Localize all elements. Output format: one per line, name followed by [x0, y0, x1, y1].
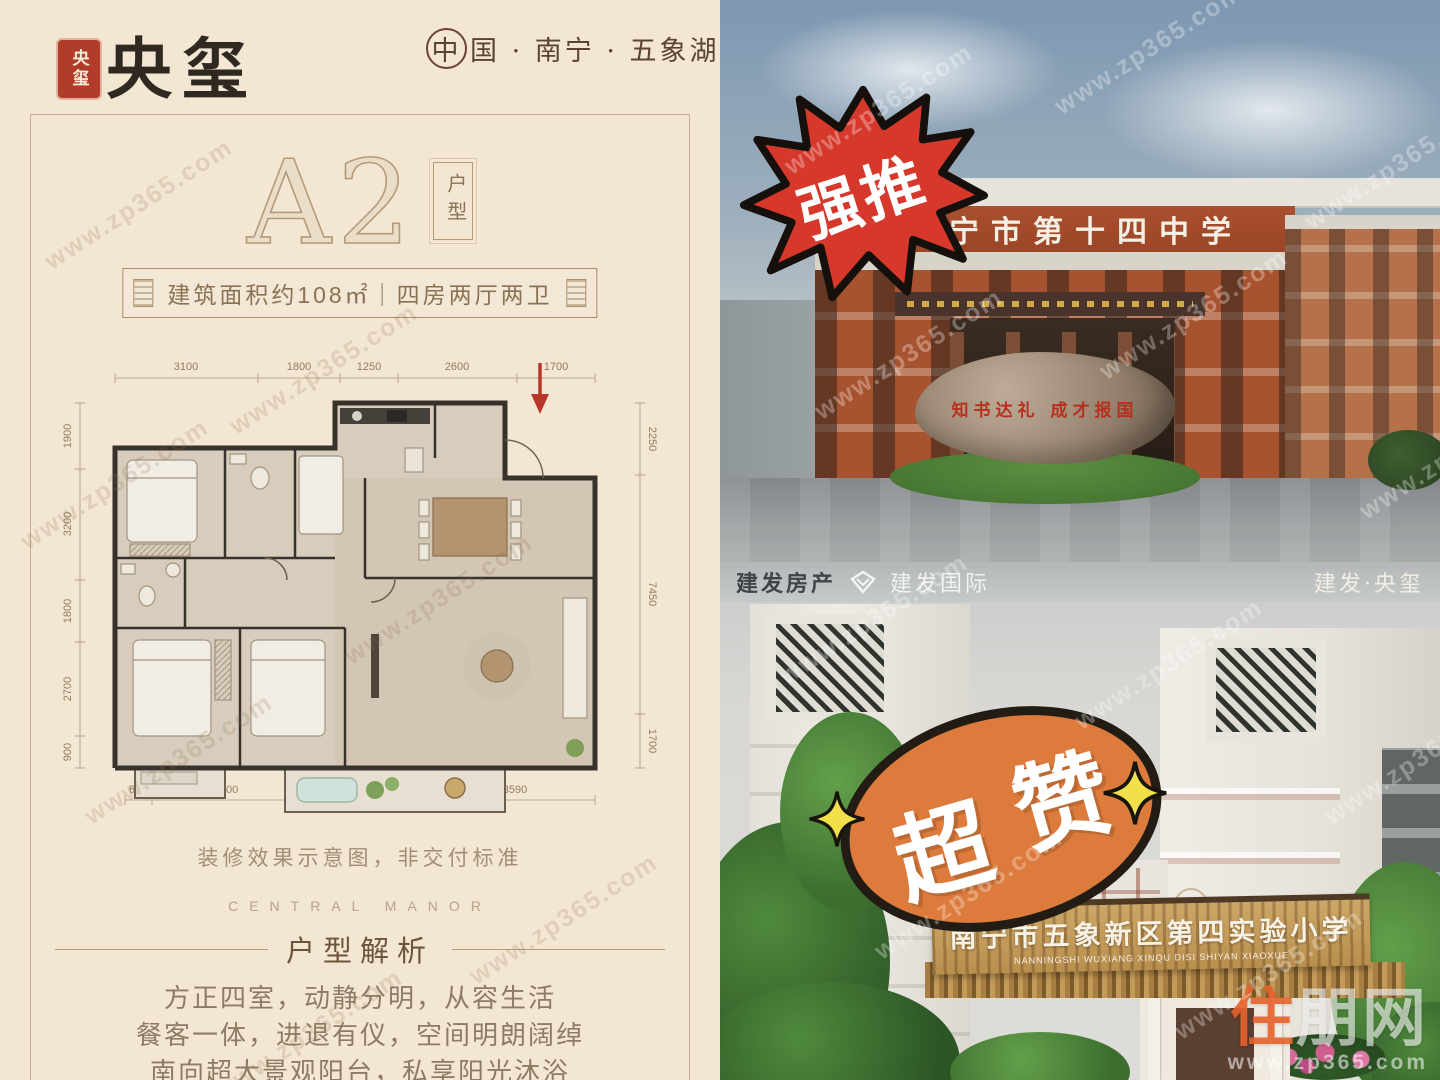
strong-recommend-badge: 强推 — [738, 82, 988, 307]
developer-logo-icon — [850, 570, 876, 594]
developer-name: 建发房产 — [736, 566, 836, 598]
cloud-shape — [1100, 40, 1440, 180]
site-logo-accent-char: 住 — [1230, 982, 1296, 1054]
area-badge: 建筑面积约108㎡｜四房两厅两卫 — [122, 268, 597, 318]
dim-label: 2700 — [62, 677, 74, 701]
inscription-stone: 知书达礼 成才报国 — [915, 352, 1175, 464]
section-title: 户型解析 — [286, 928, 434, 970]
lattice-crown — [1206, 638, 1326, 742]
floorplan-caption: 装修效果示意图，非交付标准 — [0, 842, 720, 872]
dim-label: 1700 — [646, 729, 658, 753]
description-block: 方正四室，动静分明，从容生活 餐客一体，进退有仪，空间明朗阔绰 南向超大景观阳台… — [0, 980, 720, 1080]
super-awesome-text: 超 赞 — [877, 728, 1126, 911]
dim-label: 1900 — [62, 424, 74, 448]
site-logo-name: 住朋网 — [1228, 985, 1428, 1052]
description-line: 方正四室，动静分明，从容生活 — [0, 980, 720, 1017]
background-building — [720, 300, 815, 480]
dim-label: 900 — [62, 743, 74, 761]
site-logo-rest: 朋网 — [1296, 982, 1428, 1054]
rule-left — [55, 949, 268, 950]
location-line: 中 国 · 南宁 · 五象湖 — [426, 28, 720, 69]
foreground-plants — [950, 1032, 1130, 1080]
brand-seal-stamp: 央玺 — [58, 40, 100, 98]
wing-roof — [1285, 215, 1440, 229]
primary-school-photo: 建发房产 建发国际 建发·央玺 南宁市五象新区第四实验小学 NANNINGSH — [720, 562, 1440, 1080]
bush-shape — [1368, 430, 1440, 490]
plan-title: A2 户型 — [0, 146, 720, 262]
middle-school-photo: 南宁市第十四中学 知书达礼 成才报国 — [720, 0, 1440, 562]
project-brand-name: 建发·央玺 — [1314, 566, 1424, 598]
site-logo-url: www.zp365.com — [1228, 1052, 1428, 1074]
area-text: 建筑面积约108㎡｜四房两厅两卫 — [167, 276, 552, 310]
sparkle-icon — [808, 790, 866, 848]
developer-group-name: 建发国际 — [890, 566, 990, 598]
plan-code: A2 — [247, 146, 417, 262]
real-estate-poster: 央玺 央玺 中 国 · 南宁 · 五象湖 A2 户型 建筑面积约108㎡｜四房两… — [0, 0, 1440, 1080]
english-brand: CENTRAL MANOR — [0, 898, 720, 914]
location-text: 国 · 南宁 · 五象湖 — [470, 29, 720, 68]
sparkle-icon — [1102, 760, 1168, 826]
stone-inscription: 知书达礼 成才报国 — [952, 396, 1139, 421]
floorplan-panel: 央玺 央玺 中 国 · 南宁 · 五象湖 A2 户型 建筑面积约108㎡｜四房两… — [0, 0, 720, 1080]
dim-label: 1800 — [62, 599, 74, 623]
gate-column — [1148, 998, 1160, 1080]
developer-brand-bar: 建发房产 建发国际 建发·央玺 — [720, 562, 1440, 602]
section-heading: 户型解析 — [0, 928, 720, 970]
site-watermark-logo: 住朋网 www.zp365.com — [1228, 985, 1428, 1074]
dim-label: 7450 — [646, 582, 658, 606]
brand-name-calligraphy: 央玺 — [106, 16, 258, 112]
rule-right — [452, 949, 665, 950]
badge-ornament-left-icon — [133, 279, 153, 307]
description-line: 餐客一体，进退有仪，空间明朗阔绰 — [0, 1017, 720, 1054]
badge-ornament-right-icon — [567, 279, 587, 307]
dim-label: 1800 — [287, 361, 311, 373]
plan-type-label: 户型 — [433, 162, 473, 240]
dim-label: 3100 — [174, 361, 198, 373]
dim-label: 2250 — [646, 427, 658, 451]
dim-label: 2600 — [445, 361, 469, 373]
dim-label: 3200 — [62, 512, 74, 536]
badge-char: 超 — [875, 764, 1008, 925]
lattice-crown — [766, 614, 894, 722]
dim-label: 1250 — [357, 361, 381, 373]
circled-char: 中 — [426, 28, 467, 69]
floorplan-drawing: 3100 1800 1250 2600 1700 600 3300 3000 3… — [35, 348, 685, 828]
description-line: 南向超大景观阳台，私享阳光沐浴 — [0, 1054, 720, 1080]
dim-label: 3590 — [503, 784, 527, 796]
dim-label: 1700 — [544, 361, 568, 373]
